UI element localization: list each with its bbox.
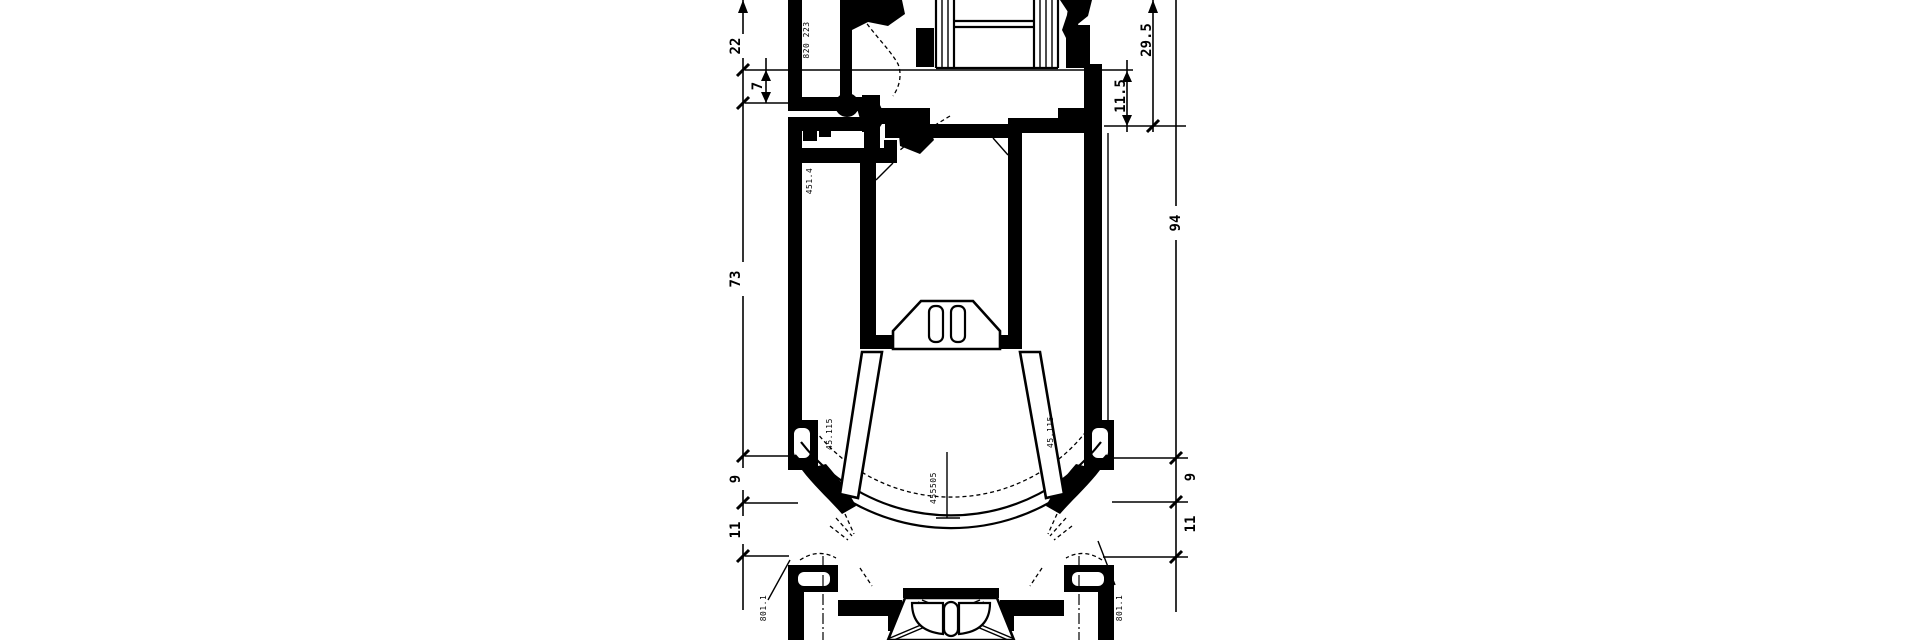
- part-label-sill-right: 801.1: [1115, 595, 1124, 622]
- leader-sill-left: [768, 560, 790, 600]
- dim-label-7: 7: [750, 82, 766, 90]
- screw-boss-trapezoid: [893, 301, 1000, 349]
- dimension-right-stack: [1122, 0, 1182, 612]
- arrow-up: [738, 0, 748, 13]
- frame-section: [788, 0, 1114, 514]
- sill-section: [768, 541, 1115, 640]
- part-label-frame-chamber: 451.4: [805, 168, 814, 195]
- support-leg-right: [1020, 352, 1064, 498]
- dim-label-22: 22: [728, 38, 744, 55]
- dim-label-9-left: 9: [728, 475, 744, 483]
- part-label-sash-bead: 820 223: [802, 21, 811, 58]
- part-label-sill-left: 801.1: [759, 595, 768, 622]
- dimension-left-stack: [737, 0, 771, 610]
- dim-label-94: 94: [1168, 215, 1184, 232]
- setting-block: [916, 28, 934, 67]
- support-leg-left: [840, 352, 882, 498]
- drawing-canvas: 22 7 73 9 11 29.5 11.5 94 9 11 820 223 4…: [0, 0, 1920, 640]
- dim-label-29-5: 29.5: [1139, 23, 1155, 57]
- dim-label-11-5: 11.5: [1113, 79, 1129, 113]
- part-label-arc-assembly: 455505: [929, 472, 938, 504]
- part-label-gasket-right: 45.115: [1046, 416, 1055, 448]
- dim-label-11-left: 11: [728, 522, 744, 539]
- part-label-gasket-left: 45.115: [825, 418, 834, 450]
- dim-label-73: 73: [728, 271, 744, 288]
- dim-label-9-right: 9: [1183, 473, 1199, 481]
- arrow-up: [1148, 0, 1158, 13]
- glass-unit: [936, 0, 1058, 68]
- dim-label-11-right: 11: [1183, 516, 1199, 533]
- profile-section-drawing: 22 7 73 9 11 29.5 11.5 94 9 11 820 223 4…: [0, 0, 1920, 640]
- glazing-gasket-top-left: [846, 0, 905, 30]
